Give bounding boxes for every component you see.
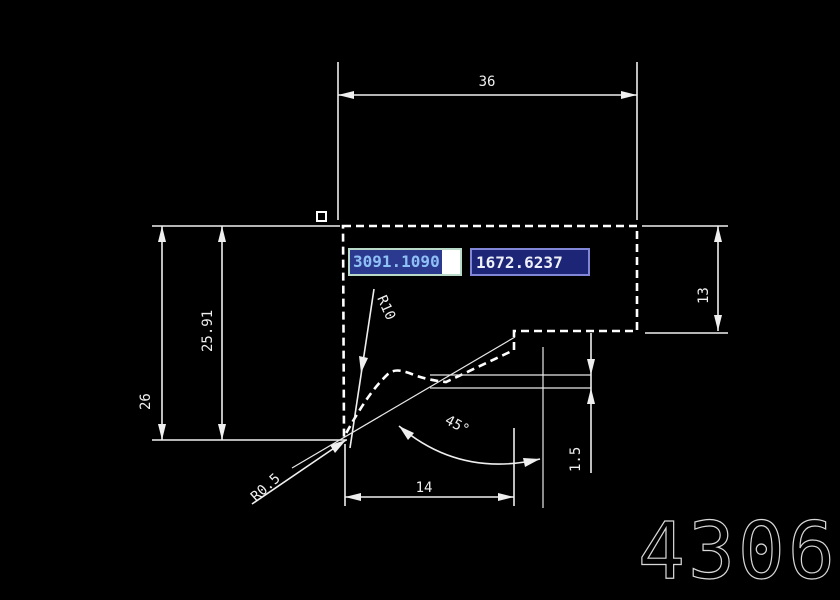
dim-bottom-width: 14 bbox=[345, 428, 514, 506]
arrowhead-icon bbox=[359, 356, 368, 373]
arrowhead-icon bbox=[218, 226, 226, 242]
dim-label-inner-height: 25.91 bbox=[200, 310, 216, 352]
grip-handle[interactable] bbox=[317, 212, 326, 221]
dim-top-width: 36 bbox=[338, 62, 637, 220]
arrowhead-icon bbox=[345, 493, 361, 501]
dim-left-heights: 26 25.91 bbox=[138, 226, 347, 440]
arrowhead-icon bbox=[399, 426, 414, 440]
coord-x-value[interactable]: 3091.1090 bbox=[350, 250, 442, 274]
dim-label-overall-height: 26 bbox=[138, 393, 154, 410]
drawing-layer: 36 26 25.91 13 bbox=[0, 0, 840, 600]
angle-reference-line bbox=[292, 337, 515, 468]
dim-label-radius-small: R0.5 bbox=[248, 471, 284, 505]
dim-radius-large: R10 bbox=[350, 289, 398, 448]
dim-label-small-offset: 1.5 bbox=[568, 447, 584, 472]
dim-label-top-width: 36 bbox=[479, 74, 496, 90]
arrowhead-icon bbox=[523, 458, 540, 467]
cad-canvas[interactable]: 36 26 25.91 13 bbox=[0, 0, 840, 600]
dim-label-right-step: 13 bbox=[696, 287, 712, 304]
arrowhead-icon bbox=[338, 91, 354, 99]
arrowhead-icon bbox=[158, 226, 166, 242]
arrowhead-icon bbox=[218, 424, 226, 440]
coord-y-input[interactable]: 1672.6237 bbox=[470, 248, 590, 276]
arrowhead-icon bbox=[714, 226, 722, 242]
arrowhead-icon bbox=[498, 493, 514, 501]
dim-label-bottom-width: 14 bbox=[416, 480, 433, 496]
arrowhead-icon bbox=[587, 359, 595, 375]
dim-label-radius-large: R10 bbox=[373, 293, 398, 323]
dim-small-offset: 1.5 bbox=[430, 333, 595, 473]
arrowhead-icon bbox=[621, 91, 637, 99]
arrowhead-icon bbox=[158, 424, 166, 440]
angle-arc bbox=[399, 426, 540, 464]
arrowhead-icon bbox=[330, 440, 346, 453]
arrowhead-icon bbox=[587, 388, 595, 404]
arrowhead-icon bbox=[714, 315, 722, 331]
dim-right-step: 13 bbox=[642, 226, 728, 333]
coord-x-input[interactable]: 3091.1090 bbox=[348, 248, 462, 276]
dim-radius-small: R0.5 bbox=[248, 440, 346, 505]
part-number: 4306 bbox=[638, 507, 838, 597]
dim-label-chamfer-angle: 45° bbox=[442, 412, 472, 438]
coord-y-value[interactable]: 1672.6237 bbox=[476, 253, 563, 272]
